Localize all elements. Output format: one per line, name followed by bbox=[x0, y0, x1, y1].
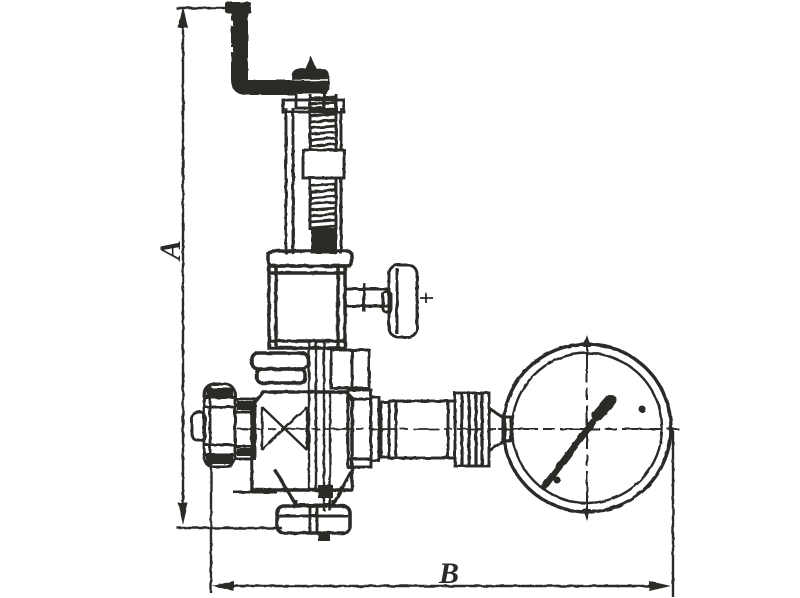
svg-text:B: B bbox=[438, 557, 459, 590]
svg-text:A: A bbox=[154, 240, 187, 262]
